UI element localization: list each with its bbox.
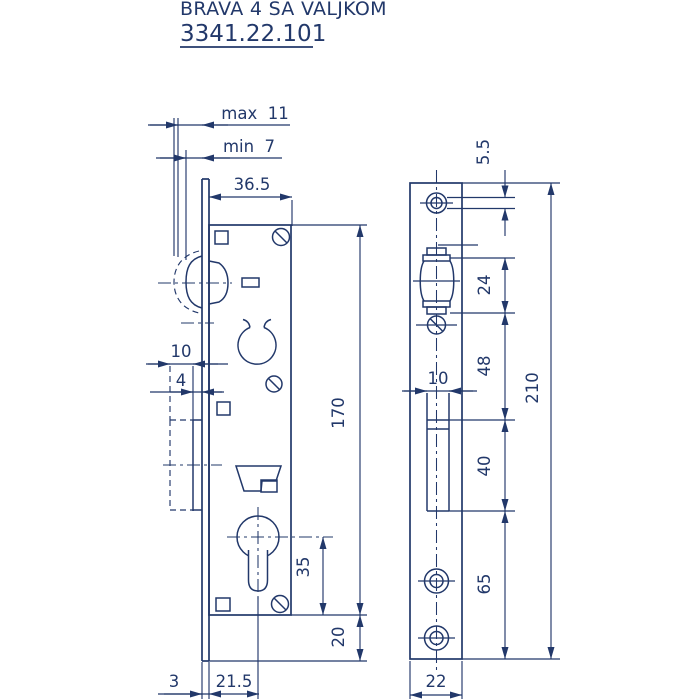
lock-technical-drawing: BRAVA 4 SA VALJKOM 3341.22.101	[0, 0, 700, 700]
dim-latch-to-bolt: 48	[475, 356, 494, 377]
dim-faceplate-thickness: 3	[169, 672, 180, 691]
dim-cylinder-to-bottom: 35	[294, 557, 313, 578]
product-code: 3341.22.101	[180, 21, 326, 47]
dim-hole-diameter: 5.5	[474, 139, 493, 165]
dim-plate-height: 210	[523, 372, 542, 404]
dim-bolt-protrusion: 4	[176, 371, 187, 390]
dim-plate-width: 22	[426, 672, 447, 691]
dim-case-depth: 36.5	[234, 175, 271, 194]
dim-bolt-opening-width: 10	[428, 369, 449, 388]
background	[0, 0, 700, 700]
dim-backset: 21.5	[216, 672, 253, 691]
dim-bottom-margin: 20	[329, 627, 348, 648]
dim-bottom-section: 65	[475, 574, 494, 595]
dim-bolt-throw: 10	[171, 342, 192, 361]
product-name: BRAVA 4 SA VALJKOM	[180, 0, 387, 20]
dim-latch-opening: 24	[475, 275, 494, 296]
drawing-canvas: BRAVA 4 SA VALJKOM 3341.22.101	[0, 0, 700, 700]
dim-bolt-opening-height: 40	[475, 456, 494, 477]
dim-min-protrusion: min 7	[223, 137, 275, 156]
dim-case-height: 170	[329, 397, 348, 429]
dim-max-protrusion: max 11	[221, 104, 288, 123]
